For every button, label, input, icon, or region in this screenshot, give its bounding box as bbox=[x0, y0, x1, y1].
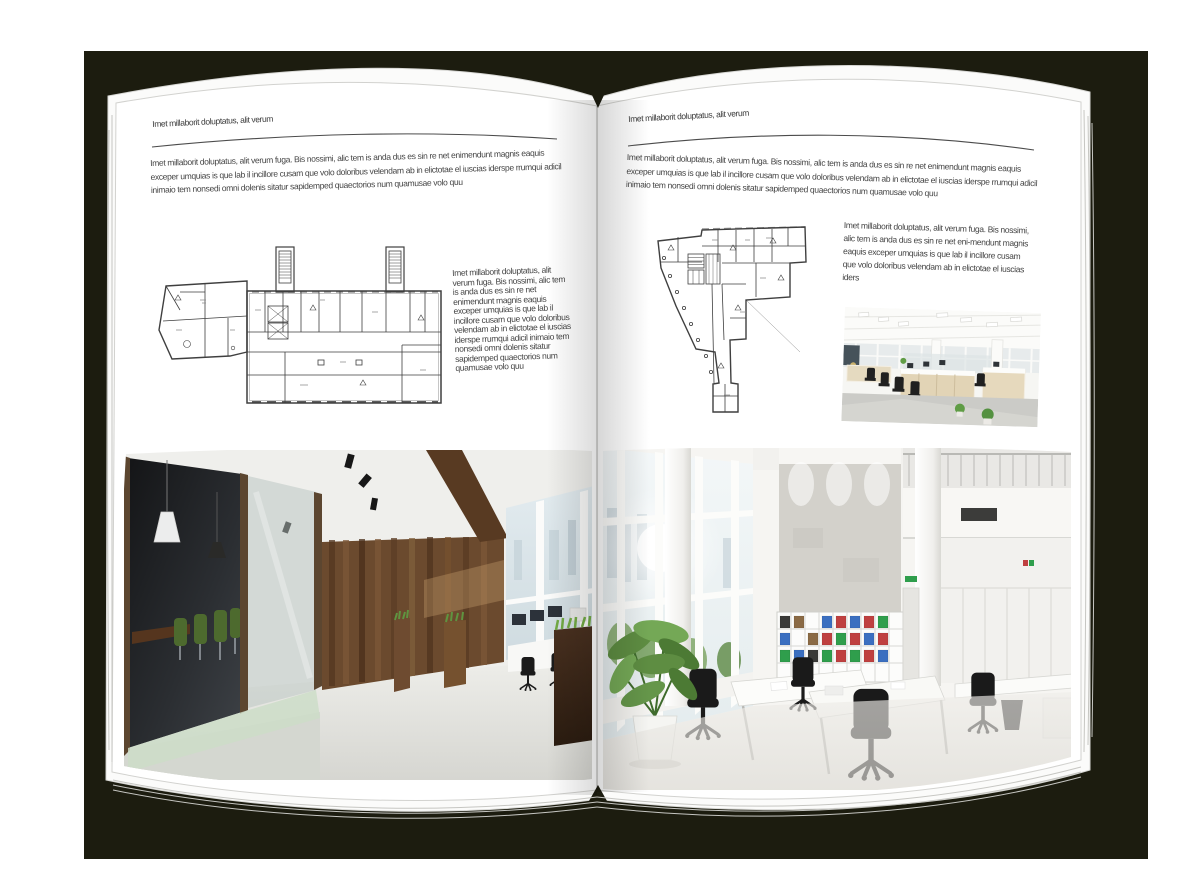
right-page-photo-small bbox=[841, 307, 1040, 427]
right-page-side-text: Imet millaborit doluptatus, alit verum f… bbox=[842, 219, 1032, 290]
glass-meeting-room bbox=[124, 456, 322, 772]
brochure-mockup-stage: Imet millaborit doluptatus, alit verum I… bbox=[0, 0, 1200, 891]
concrete-wall bbox=[779, 448, 901, 616]
left-page-photo bbox=[124, 450, 594, 780]
left-page-side-text: Imet millaborit doluptatus, alit verum f… bbox=[452, 265, 574, 374]
spine-shade-right bbox=[597, 100, 649, 792]
right-page-photo-large bbox=[599, 448, 1073, 790]
booklet-scene bbox=[0, 0, 1200, 891]
spine-shade-left bbox=[547, 100, 597, 795]
